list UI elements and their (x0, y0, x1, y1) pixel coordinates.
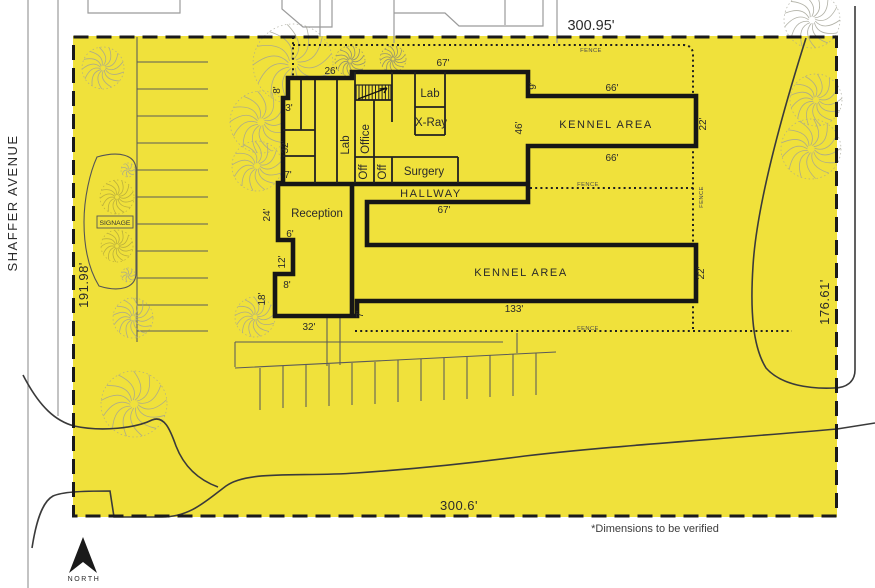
label-9: 9' (528, 82, 539, 90)
label-kennel-area: KENNEL AREA (559, 119, 653, 131)
label-22: 22' (696, 266, 707, 279)
label-fence: FENCE (577, 326, 599, 332)
label-lab: Lab (340, 135, 352, 154)
label-18: 18' (257, 292, 268, 305)
label-reception: Reception (291, 208, 343, 220)
label-shaffer-avenue: SHAFFER AVENUE (5, 134, 20, 271)
label-off: Off (377, 164, 389, 180)
label-surgery: Surgery (404, 166, 445, 178)
label-3: 3' (285, 103, 293, 114)
label-8: 8' (272, 86, 283, 94)
label-66: 66' (605, 83, 618, 94)
label-300-95: 300.95' (567, 18, 614, 34)
label-26: 26' (324, 66, 337, 77)
label-176-61: 176.61' (817, 279, 832, 325)
label-office: Office (360, 124, 372, 154)
label-191-98: 191.98' (76, 262, 91, 308)
label-8: 8' (283, 280, 291, 291)
label-lab: Lab (420, 88, 439, 100)
label-fence: FENCE (580, 48, 602, 54)
label-hallway: HALLWAY (400, 188, 462, 200)
label-67: 67' (436, 58, 449, 69)
site-plan-page: 26'8'3'32'7'67'9'66'22'46'66'24'6'12'8'1… (0, 0, 875, 588)
north-arrow-icon (69, 537, 97, 573)
label-66: 66' (605, 153, 618, 164)
label-kennel-area: KENNEL AREA (474, 267, 568, 279)
neighbor-outline (282, 0, 332, 27)
label-7: 7' (284, 170, 292, 181)
label-signage: SIGNAGE (100, 220, 131, 227)
label-133: 133' (505, 304, 524, 315)
label-x-ray: X-Ray (415, 117, 447, 129)
label-46: 46' (514, 121, 525, 134)
label-7: 7' (355, 310, 366, 318)
label-32: 32' (280, 140, 291, 153)
label-6: 6' (286, 229, 294, 240)
label-off: Off (358, 164, 370, 180)
label-fence: FENCE (699, 186, 705, 208)
label-300-6: 300.6' (440, 498, 478, 513)
label-67: 67' (437, 205, 450, 216)
label-32: 32' (302, 322, 315, 333)
label-22: 22' (698, 117, 709, 130)
label-dimensions-to-be-verified: *Dimensions to be verified (591, 523, 719, 535)
label-24: 24' (262, 208, 273, 221)
label-north: NORTH (68, 576, 101, 583)
label-12: 12' (277, 255, 288, 268)
neighbor-outline (88, 0, 180, 13)
site-plan-drawing: 26'8'3'32'7'67'9'66'22'46'66'24'6'12'8'1… (0, 0, 875, 588)
label-fence: FENCE (577, 182, 599, 188)
